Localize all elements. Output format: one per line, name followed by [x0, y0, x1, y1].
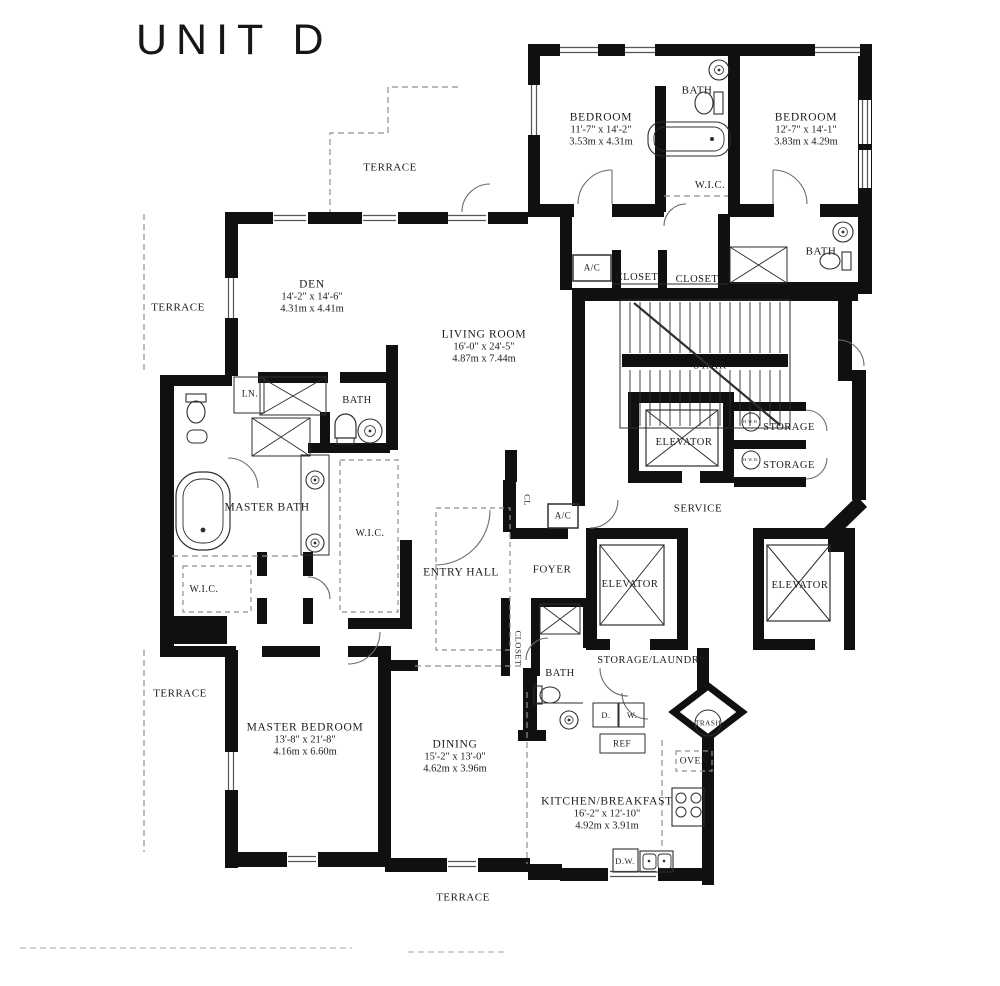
plan-drawing	[0, 0, 1000, 986]
room-label-dining: DINING15'-2" x 13'-0"4.62m x 3.96m	[423, 739, 487, 776]
label-washer: W.	[627, 711, 637, 720]
room-dims: 3.83m x 4.29m	[774, 137, 838, 149]
room-dims: 14'-2" x 14'-6"	[280, 292, 344, 304]
label-terrace-top: TERRACE	[363, 163, 417, 174]
label-terrace-left-upper: TERRACE	[151, 303, 205, 314]
label-dryer: D.	[601, 711, 610, 720]
room-dims: 16'-0" x 24'-5"	[442, 342, 527, 354]
label-master-bath: MASTER BATH	[224, 502, 309, 514]
label-storage-1: STORAGE	[763, 423, 815, 434]
sink-icon-lower-bath	[560, 711, 578, 729]
label-ref: REF	[613, 740, 631, 749]
label-storage-laundry: STORAGE/LAUNDRY	[597, 656, 706, 667]
room-label-den: DEN14'-2" x 14'-6"4.31m x 4.41m	[280, 279, 344, 316]
label-closet-2: CLOSET	[676, 275, 719, 286]
room-dims: 4.87m x 7.44m	[442, 354, 527, 366]
room-label-bedroom-1: BEDROOM11'-7" x 14'-2"3.53m x 4.31m	[569, 112, 633, 149]
label-bath-guest: BATH	[806, 247, 837, 258]
label-linen: LN.	[242, 390, 259, 400]
room-dims: 3.53m x 4.31m	[569, 137, 633, 149]
label-closet-vertical: CLOSET	[514, 630, 523, 665]
room-name: BEDROOM	[774, 112, 838, 125]
shower-icon-guest-bath	[730, 247, 787, 283]
room-name: LIVING ROOM	[442, 329, 527, 342]
label-bath-middle: BATH	[342, 396, 371, 407]
room-label-bedroom-2: BEDROOM12'-7" x 14'-1"3.83m x 4.29m	[774, 112, 838, 149]
label-bath-top: BATH	[682, 86, 713, 97]
room-dims: 11'-7" x 14'-2"	[569, 125, 633, 137]
room-label-living-room: LIVING ROOM16'-0" x 24'-5"4.87m x 7.44m	[442, 329, 527, 366]
shower-icon-lower-bath	[540, 604, 580, 634]
label-closet-1: CLOSET	[616, 273, 659, 284]
room-dims: 15'-2" x 13'-0"	[423, 752, 487, 764]
label-stair: STAIR	[693, 361, 726, 372]
label-ac-middle: A/C	[555, 512, 572, 521]
room-name: BEDROOM	[569, 112, 633, 125]
sink-icon-guest-bath	[833, 222, 853, 242]
room-name: DEN	[280, 279, 344, 292]
room-dims: 12'-7" x 14'-1"	[774, 125, 838, 137]
label-ac-top: A/C	[584, 264, 601, 273]
room-label-kitchen: KITCHEN/BREAKFAST16'-2" x 12'-10"4.92m x…	[541, 796, 673, 833]
label-wic-top: W.I.C.	[695, 181, 725, 192]
toilet-icon-master-bath	[186, 394, 206, 423]
trash-chute-icon	[674, 686, 742, 738]
kitchen-sink-icon	[640, 851, 673, 872]
toilet-icon-lower-bath	[534, 686, 560, 704]
room-dims: 4.62m x 3.96m	[423, 764, 487, 776]
toilet-icon-mid-bath	[335, 414, 356, 444]
label-elevator-3: ELEVATOR	[772, 581, 829, 592]
label-storage-2: STORAGE	[763, 461, 815, 472]
label-cl: CL	[523, 494, 532, 506]
room-dims: 4.31m x 4.41m	[280, 304, 344, 316]
room-name: DINING	[423, 739, 487, 752]
bidet-icon-master-bath	[187, 430, 207, 443]
sink-icon-master-1	[306, 471, 324, 489]
label-trash: TRASH	[695, 720, 721, 727]
label-entry-hall: ENTRY HALL	[423, 567, 499, 579]
label-elevator-1: ELEVATOR	[656, 438, 713, 449]
label-service: SERVICE	[674, 504, 722, 515]
label-terrace-bottom: TERRACE	[436, 893, 490, 904]
label-elevator-2: ELEVATOR	[602, 580, 659, 591]
label-bath-lower: BATH	[545, 669, 574, 680]
room-dims: 4.92m x 3.91m	[541, 821, 673, 833]
label-dishwasher: D.W.	[615, 857, 635, 866]
label-foyer: FOYER	[533, 565, 572, 576]
sink-icon-mid-bath	[358, 419, 382, 443]
tub-icon-master-bath	[176, 472, 230, 550]
sink-icon-top-bath	[709, 60, 729, 80]
label-hwh-1: H.W.H.	[743, 420, 759, 424]
room-dims: 16'-2" x 12'-10"	[541, 809, 673, 821]
label-wic-middle: W.I.C.	[355, 529, 384, 539]
label-oven: OVEN	[680, 757, 708, 767]
cooktop-icon	[672, 788, 704, 826]
label-terrace-left-lower: TERRACE	[153, 689, 207, 700]
label-wic-left: W.I.C.	[189, 585, 218, 595]
room-dims: 4.16m x 6.60m	[247, 747, 364, 759]
room-name: KITCHEN/BREAKFAST	[541, 796, 673, 809]
floor-plan: UNIT D TERRACETERRACETERRACETERRACEBATHW…	[0, 0, 1000, 986]
shower-icon-master-2	[252, 418, 310, 456]
label-hwh-2: H.W.H.	[743, 458, 759, 462]
sink-icon-master-2	[306, 534, 324, 552]
room-label-master-bedroom: MASTER BEDROOM13'-8" x 21'-8"4.16m x 6.6…	[247, 722, 364, 759]
room-dims: 13'-8" x 21'-8"	[247, 735, 364, 747]
room-name: MASTER BEDROOM	[247, 722, 364, 735]
